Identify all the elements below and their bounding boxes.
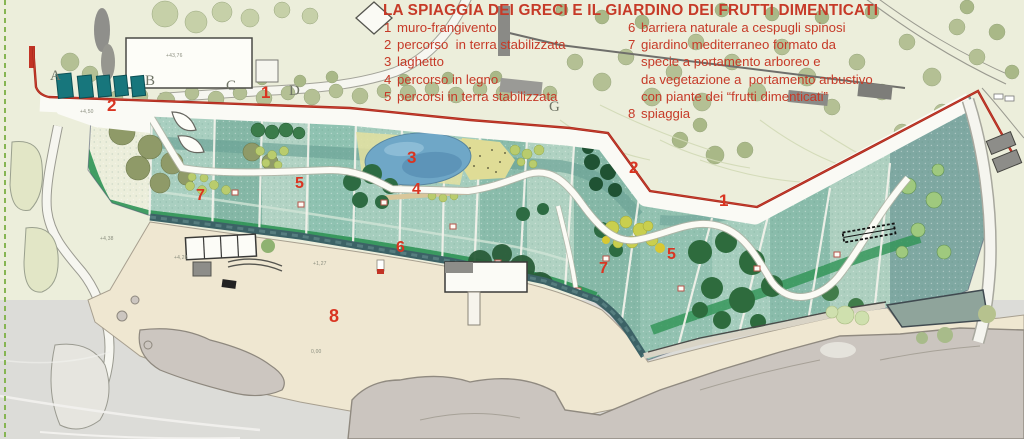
site-plan-drawing xyxy=(0,0,1024,439)
building-topleft xyxy=(126,38,252,88)
pier xyxy=(468,292,480,325)
beach-flag-marker xyxy=(377,260,384,274)
beach-hut-gray xyxy=(193,262,211,276)
site-plan: LA SPIAGGIA DEI GRECI E IL GIARDINO DEI … xyxy=(0,0,1024,439)
